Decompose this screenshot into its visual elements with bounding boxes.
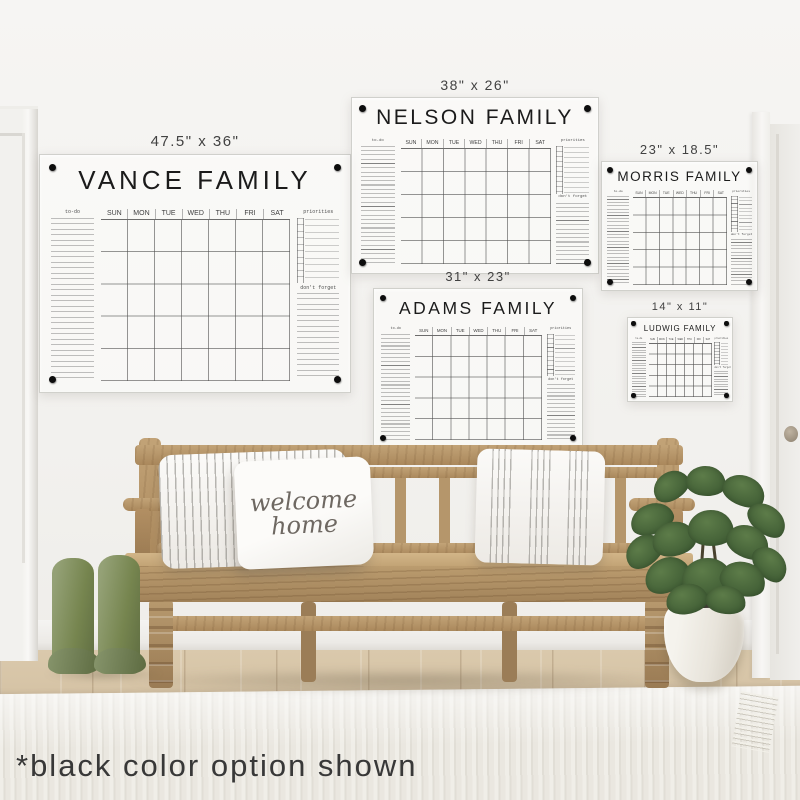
- checkboxes: [556, 146, 563, 194]
- todo-label: to-do: [51, 209, 94, 216]
- day-header: THU: [686, 190, 700, 197]
- day-header: TUE: [443, 139, 465, 148]
- acrylic-board: NELSON FAMILY to-do SUN MON TUE WED THU …: [351, 97, 599, 274]
- mount-dot: [359, 105, 366, 112]
- day-header: SAT: [703, 337, 712, 343]
- family-name: VANCE FAMILY: [78, 165, 311, 196]
- priorities-column: priorities don't forget: [547, 327, 575, 440]
- product-photo-scene: 47.5" x 36" VANCE FAMILY to-do SUN MON T…: [0, 0, 800, 800]
- dont-forget-label: don't forget: [556, 195, 589, 200]
- priorities-label: priorities: [556, 139, 589, 144]
- todo-lines: [381, 334, 410, 440]
- family-name: ADAMS FAMILY: [399, 298, 557, 319]
- right-door-knob: [784, 426, 798, 442]
- day-header: TUE: [155, 209, 182, 219]
- month-column: SUN MON TUE WED THU FRI SAT: [101, 209, 290, 381]
- boot: [52, 558, 94, 674]
- dont-forget-lines: [547, 384, 575, 439]
- calendar-nelson: 38" x 26" NELSON FAMILY to-do SUN MON TU…: [352, 77, 598, 274]
- todo-lines: [632, 342, 647, 397]
- priorities-checklist: [556, 146, 589, 194]
- day-header: SUN: [649, 337, 657, 343]
- checklist-lines: [305, 218, 339, 283]
- day-header: SUN: [633, 190, 646, 197]
- priorities-column: priorities don't forget: [731, 190, 752, 285]
- day-header: SUN: [415, 327, 432, 335]
- month-column: SUN MON TUE WED THU FRI SAT: [415, 327, 542, 440]
- acrylic-board: LUDWIG FAMILY to-do SUN MON TUE WED THU …: [627, 317, 733, 402]
- todo-label: to-do: [632, 337, 647, 340]
- todo-column: to-do: [381, 327, 410, 440]
- month-grid: [633, 198, 727, 285]
- day-header: WED: [673, 190, 687, 197]
- mount-dot: [359, 259, 366, 266]
- day-header-row: SUN MON TUE WED THU FRI SAT: [101, 209, 290, 220]
- calendar-body: to-do SUN MON TUE WED THU FRI SAT: [602, 190, 757, 285]
- month-grid: [649, 344, 712, 397]
- day-header: MON: [657, 337, 666, 343]
- day-header: SAT: [524, 327, 542, 335]
- day-header-row: SUN MON TUE WED THU FRI SAT: [649, 337, 712, 344]
- day-header-row: SUN MON TUE WED THU FRI SAT: [401, 139, 551, 149]
- mount-dot: [724, 393, 729, 398]
- checklist-lines: [555, 334, 575, 377]
- calendar-vance: 47.5" x 36" VANCE FAMILY to-do SUN MON T…: [40, 133, 350, 393]
- family-name: LUDWIG FAMILY: [644, 324, 716, 333]
- todo-lines: [607, 196, 629, 285]
- bench-leg: [301, 602, 316, 682]
- checklist-lines: [721, 342, 728, 365]
- day-header: THU: [684, 337, 693, 343]
- acrylic-board: VANCE FAMILY to-do SUN MON TUE WED THU F…: [39, 154, 351, 393]
- day-header: SUN: [101, 209, 127, 219]
- mount-dot: [334, 376, 341, 383]
- calendar-body: to-do SUN MON TUE WED THU FRI SAT: [374, 327, 582, 440]
- mount-dot: [584, 105, 591, 112]
- checkboxes: [547, 334, 554, 377]
- todo-column: to-do: [632, 337, 647, 397]
- calendar-morris: 23" x 18.5" MORRIS FAMILY to-do SUN MON …: [602, 142, 757, 291]
- calendar-body: to-do SUN MON TUE WED THU FRI SAT: [628, 337, 732, 397]
- priorities-label: priorities: [714, 337, 728, 340]
- month-grid: [401, 149, 551, 264]
- day-header: MON: [645, 190, 659, 197]
- month-grid: [415, 336, 542, 440]
- day-header: TUE: [666, 337, 675, 343]
- day-header: MON: [432, 327, 450, 335]
- mount-dot: [607, 279, 613, 285]
- mount-dot: [334, 164, 341, 171]
- priorities-column: priorities don't forget: [297, 209, 339, 381]
- day-header: MON: [127, 209, 154, 219]
- priorities-column: priorities don't forget: [714, 337, 728, 397]
- green-rain-boots: [50, 550, 156, 680]
- mount-dot: [570, 295, 576, 301]
- todo-column: to-do: [361, 139, 395, 264]
- priorities-label: priorities: [297, 209, 339, 216]
- acrylic-board: ADAMS FAMILY to-do SUN MON TUE WED THU F…: [373, 288, 583, 448]
- day-header: SAT: [263, 209, 290, 219]
- family-name: MORRIS FAMILY: [617, 169, 741, 184]
- day-header: TUE: [451, 327, 469, 335]
- bench-stretcher: [159, 616, 659, 631]
- dont-forget-lines: [731, 239, 752, 285]
- checkboxes: [297, 218, 304, 283]
- todo-label: to-do: [381, 327, 410, 332]
- day-header: WED: [675, 337, 684, 343]
- dont-forget-lines: [556, 203, 589, 265]
- priorities-column: priorities don't forget: [556, 139, 589, 264]
- family-name: NELSON FAMILY: [376, 106, 574, 130]
- size-label: 23" x 18.5": [640, 142, 719, 157]
- checklist-lines: [564, 146, 589, 194]
- calendar-ludwig: 14" x 11" LUDWIG FAMILY to-do SUN MON TU…: [628, 301, 732, 402]
- month-column: SUN MON TUE WED THU FRI SAT: [633, 190, 727, 285]
- day-header: THU: [487, 327, 505, 335]
- calendar-body: to-do SUN MON TUE WED THU FRI SAT: [40, 209, 350, 381]
- dont-forget-label: don't forget: [297, 285, 339, 292]
- calendar-body: to-do SUN MON TUE WED THU FRI SAT: [352, 139, 598, 264]
- welcome-home-pillow: welcome home: [234, 456, 375, 570]
- day-header: TUE: [659, 190, 673, 197]
- day-header: MON: [421, 139, 443, 148]
- day-header: FRI: [236, 209, 263, 219]
- day-header: FRI: [694, 337, 703, 343]
- day-header: FRI: [700, 190, 714, 197]
- month-column: SUN MON TUE WED THU FRI SAT: [649, 337, 712, 397]
- priorities-label: priorities: [731, 190, 752, 194]
- todo-column: to-do: [51, 209, 94, 381]
- priorities-checklist: [714, 342, 728, 365]
- leaf: [684, 463, 728, 498]
- todo-lines: [361, 146, 395, 264]
- size-label: 38" x 26": [440, 77, 509, 93]
- day-header-row: SUN MON TUE WED THU FRI SAT: [633, 190, 727, 198]
- checkboxes: [731, 196, 738, 232]
- fiddle-leaf-plant: [622, 466, 800, 690]
- day-header: FRI: [505, 327, 523, 335]
- mount-dot: [49, 376, 56, 383]
- dont-forget-label: don't forget: [547, 378, 575, 383]
- size-label: 31" x 23": [445, 269, 510, 284]
- todo-label: to-do: [607, 190, 629, 194]
- month-grid: [101, 220, 290, 381]
- day-header: SAT: [713, 190, 727, 197]
- mount-dot: [631, 321, 636, 326]
- todo-column: to-do: [607, 190, 629, 285]
- day-header: THU: [486, 139, 508, 148]
- day-header: SAT: [529, 139, 551, 148]
- size-label: 47.5" x 36": [151, 133, 240, 150]
- dont-forget-label: don't forget: [731, 233, 752, 237]
- priorities-checklist: [547, 334, 575, 377]
- checkboxes: [714, 342, 720, 365]
- mount-dot: [584, 259, 591, 266]
- day-header: WED: [464, 139, 486, 148]
- calendar-adams: 31" x 23" ADAMS FAMILY to-do SUN MON TUE…: [374, 269, 582, 448]
- size-label: 14" x 11": [652, 301, 709, 313]
- striped-pillow-right: [475, 448, 606, 565]
- acrylic-board: MORRIS FAMILY to-do SUN MON TUE WED THU …: [601, 161, 758, 291]
- month-column: SUN MON TUE WED THU FRI SAT: [401, 139, 551, 264]
- todo-lines: [51, 218, 94, 382]
- dont-forget-label: don't forget: [714, 366, 728, 369]
- day-header: THU: [209, 209, 236, 219]
- pillow-text-line2: home: [271, 512, 339, 539]
- bench-seat-front: [127, 566, 691, 602]
- dont-forget-lines: [297, 293, 339, 381]
- mount-dot: [49, 164, 56, 171]
- left-door-panel-line: [22, 133, 25, 563]
- priorities-checklist: [297, 218, 339, 283]
- day-header: SUN: [401, 139, 422, 148]
- priorities-checklist: [731, 196, 752, 232]
- priorities-label: priorities: [547, 327, 575, 332]
- mount-dot: [746, 167, 752, 173]
- boot: [98, 555, 140, 674]
- day-header: WED: [182, 209, 209, 219]
- bench-leg: [502, 602, 517, 682]
- checklist-lines: [739, 196, 752, 232]
- mount-dot: [631, 393, 636, 398]
- mount-dot: [380, 295, 386, 301]
- color-option-note: *black color option shown: [16, 748, 418, 784]
- left-door: [0, 106, 38, 661]
- mount-dot: [724, 321, 729, 326]
- day-header: WED: [469, 327, 487, 335]
- mount-dot: [607, 167, 613, 173]
- todo-label: to-do: [361, 139, 395, 144]
- day-header: FRI: [507, 139, 529, 148]
- day-header-row: SUN MON TUE WED THU FRI SAT: [415, 327, 542, 336]
